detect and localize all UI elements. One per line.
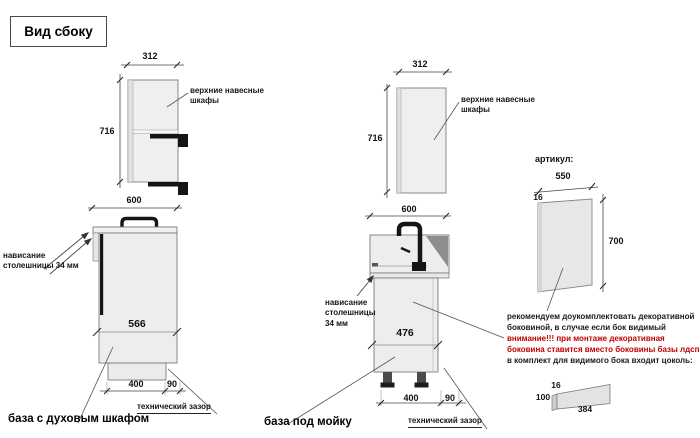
- technical-drawing-canvas: [0, 0, 700, 438]
- left-upper-cabinet-label: верхние навесные шкафы: [190, 86, 272, 107]
- note-line: в комплект для видимого бока входит цоко…: [507, 355, 699, 366]
- note-line: рекомендуем доукомплектовать декоративно…: [507, 311, 699, 322]
- base-cabinet-body: [374, 278, 438, 372]
- dim-left-upper-height: 716: [99, 126, 114, 136]
- cabinet-leg: [383, 372, 392, 383]
- countertop-overhang: [93, 233, 99, 261]
- dim-left-upper-width: 312: [142, 51, 157, 61]
- cabinet-leg: [417, 372, 426, 383]
- dim-panel-thickness: 16: [533, 192, 542, 202]
- dim-left-tech-gap: 90: [167, 379, 177, 389]
- dim-middle-tech-gap: 90: [445, 393, 455, 403]
- side-panel-heading: артикул:: [535, 154, 573, 164]
- left-overhang-label: нависание столешницы 34 мм: [3, 251, 87, 272]
- dim-middle-plinth-depth: 400: [403, 393, 418, 403]
- dim-plinth-thickness: 16: [551, 380, 560, 390]
- upper-cabinet-gable: [128, 80, 133, 182]
- note-line: боковиной, в случае если бок видимый: [507, 322, 699, 333]
- dim-left-plinth-depth: 400: [128, 379, 143, 389]
- side-panel-edge: [538, 203, 542, 292]
- page-title: Вид сбоку: [10, 16, 107, 47]
- dim-middle-upper-height: 716: [367, 133, 382, 143]
- note-line-warning: боковина ставится вместо боковины базы л…: [507, 344, 699, 355]
- middle-upper-cabinet-label: верхние навесные шкафы: [461, 95, 543, 116]
- left-upper-cabinet-drawing: [117, 62, 188, 195]
- drain-mark: [372, 263, 378, 267]
- dim-left-base-depth: 566: [128, 318, 146, 330]
- decorative-side-panel-drawing: [534, 183, 606, 311]
- upper-cabinet-gable: [397, 88, 401, 193]
- dim-middle-base-depth: 476: [396, 327, 414, 339]
- cabinet-leg-foot: [381, 383, 395, 388]
- dim-middle-upper-width: 312: [412, 59, 427, 69]
- middle-base-cabinet-drawing: [288, 213, 504, 429]
- left-base-caption: база с духовым шкафом: [8, 413, 149, 425]
- middle-base-caption: база под мойку: [264, 416, 352, 428]
- middle-upper-cabinet-drawing: [384, 69, 459, 198]
- dim-left-base-width: 600: [126, 195, 141, 205]
- arrow-icon: [84, 238, 92, 245]
- middle-tech-gap-label: технический зазор: [408, 416, 482, 428]
- oven-door-edge: [100, 234, 103, 315]
- dim-plinth-length: 384: [578, 404, 592, 414]
- countertop: [93, 227, 177, 233]
- plinth: [108, 363, 166, 380]
- side-view-drawing-page: Вид сбоку 312 716 600 566 400 90 312 716…: [0, 0, 700, 438]
- upper-cabinet-shelf: [133, 130, 178, 134]
- note-line-warning: внимание!!! при монтаже декоративная: [507, 333, 699, 344]
- middle-overhang-label: нависание столешницы 34 мм: [325, 298, 379, 329]
- plinth-part-edge: [552, 394, 557, 411]
- faucet-base: [412, 262, 426, 271]
- cabinet-leg-foot: [415, 383, 429, 388]
- base-cabinet-body: [99, 233, 177, 363]
- dim-panel-height: 700: [608, 236, 623, 246]
- dim-plinth-height: 100: [536, 392, 550, 402]
- bracket-icon: [148, 182, 188, 195]
- arrow-icon: [81, 232, 89, 239]
- notes-block: рекомендуем доукомплектовать декоративно…: [507, 311, 699, 366]
- left-base-cabinet-drawing: [44, 205, 217, 423]
- dim-panel-width: 550: [555, 171, 570, 181]
- side-panel: [538, 199, 592, 292]
- countertop: [370, 273, 449, 278]
- upper-cabinet-body: [397, 88, 446, 193]
- dim-middle-base-width: 600: [401, 204, 416, 214]
